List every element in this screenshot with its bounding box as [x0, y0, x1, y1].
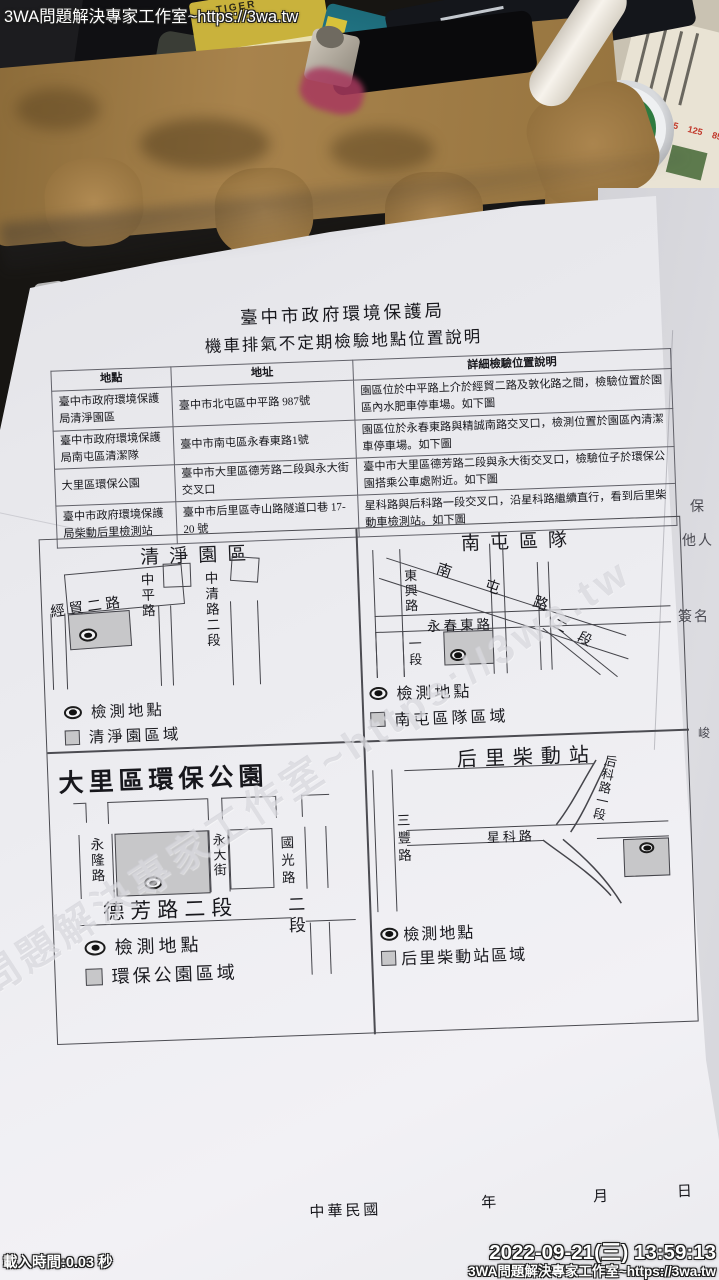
- map-houli: 后里柴動站 三豐路 星科路 后科路一段 檢: [363, 729, 700, 1035]
- legend-row-area: 環保公園區域: [85, 958, 238, 990]
- road-label-sec2: 二段: [286, 895, 305, 938]
- top-site-watermark: 3WA問題解決專家工作室~https://3wa.tw: [4, 3, 298, 27]
- side-page-fragment: 峻: [698, 724, 712, 741]
- cell-location: 臺中市政府環境保護局南屯區清潔隊: [53, 427, 174, 469]
- map-qingjing: 清淨園區 中平路 中清路二段 經貿二路 檢測地點 清淨園區域: [40, 529, 364, 752]
- load-time-watermark: 載入時間:0.03 秒: [3, 1251, 113, 1272]
- carton-shadow-patch: [140, 118, 270, 170]
- legend-area-icon: [381, 950, 397, 966]
- menu-text-bar: [678, 33, 699, 106]
- footer-year: 年: [481, 1191, 497, 1213]
- location-table: 地點 地址 詳細檢驗位置說明 臺中市政府環境保護局清淨園區 臺中市北屯區中平路 …: [50, 348, 677, 548]
- legend-dot-label: 檢測地點: [91, 698, 166, 723]
- footer-day: 日: [677, 1180, 693, 1202]
- legend-dot-icon: [380, 927, 398, 941]
- road-corridor-dongxing-south: [375, 631, 405, 678]
- legend-area-label: 后里柴動站區域: [401, 941, 528, 970]
- cell-address: 臺中市北屯區中平路 987號: [172, 380, 355, 427]
- road-corridor: [158, 606, 174, 686]
- legend-dot-label: 檢測地點: [403, 919, 476, 946]
- carton-shadow-patch: [16, 88, 100, 130]
- legend-row-dot: 檢測地點: [64, 698, 166, 724]
- menu-price: 125: [687, 124, 704, 137]
- footer-month: 月: [593, 1185, 609, 1207]
- road-label-guoguang: 國光路: [279, 835, 294, 888]
- carton-shadow-patch: [330, 128, 434, 172]
- road-label-dongxing: 東興路: [403, 569, 418, 614]
- legend-row-dot: 檢測地點: [380, 919, 476, 946]
- street-stub: [73, 803, 85, 805]
- street-stub: [107, 802, 109, 824]
- legend-row-area: 清淨園區域: [64, 722, 181, 748]
- legend-area-label: 清淨園區域: [88, 722, 181, 747]
- footer-era: 中華民國: [309, 1198, 382, 1222]
- legend-area-label: 環保公園區域: [111, 958, 238, 989]
- legend-area-icon: [65, 729, 81, 745]
- building-outline: [230, 556, 260, 583]
- road-label-zhongping: 中平路: [139, 572, 154, 619]
- road-corridor-guoguang: [304, 826, 328, 889]
- menu-price: 85: [711, 130, 719, 142]
- road-label-zhongqing: 中清路二段: [203, 571, 219, 649]
- road-corridor: [230, 600, 261, 685]
- houli-curved-roads: [363, 729, 700, 1035]
- map-title: 清淨園區: [40, 535, 357, 574]
- qingjing-park-area: [68, 610, 132, 650]
- road-corridor: [50, 613, 68, 689]
- cell-address: 臺中市南屯區永春東路1號: [173, 420, 356, 465]
- bottom-site-watermark: 3WA問題解決專家工作室~https://3wa.tw: [468, 1260, 716, 1280]
- photo-of-inspection-notice: 125 125 125 125 85 F11 Backspace MENTHOL…: [0, 0, 719, 1280]
- road-corridor-sec2: [310, 922, 332, 975]
- street-stub: [107, 798, 207, 803]
- building-outline: [163, 563, 192, 588]
- cell-location: 臺中市政府環境保護局清淨園區: [52, 387, 173, 431]
- street-stub: [85, 803, 87, 823]
- document-content: 臺中市政府環境保護局 機車排氣不定期檢驗地點位置說明 地點 地址 詳細檢驗位置說…: [8, 282, 712, 1280]
- legend-dot-label: 檢測地點: [114, 931, 203, 960]
- legend-area-icon: [85, 968, 103, 986]
- legend-dot-icon: [64, 705, 82, 719]
- cell-location: 大里區環保公園: [55, 465, 176, 506]
